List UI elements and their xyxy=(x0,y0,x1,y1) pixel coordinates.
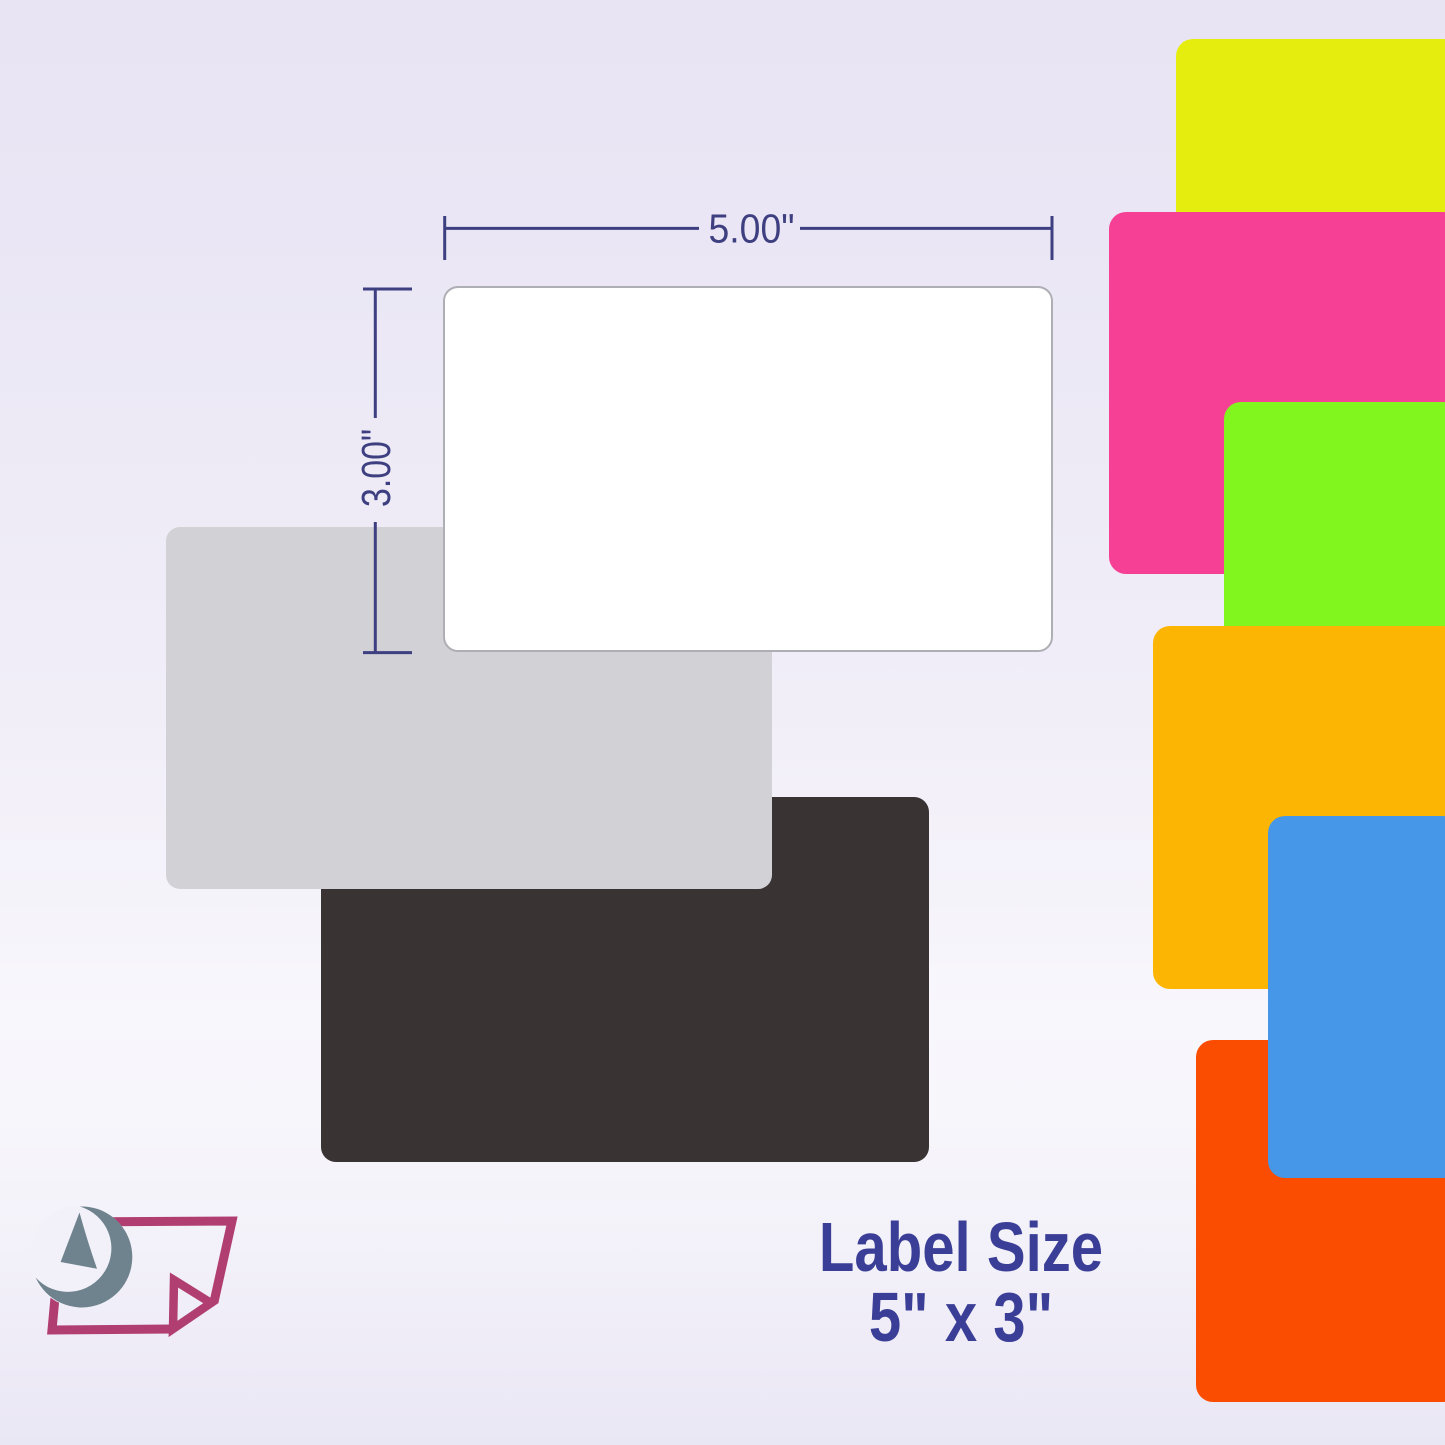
svg-text:3.00": 3.00" xyxy=(353,429,399,507)
svg-text:5.00": 5.00" xyxy=(709,206,795,252)
